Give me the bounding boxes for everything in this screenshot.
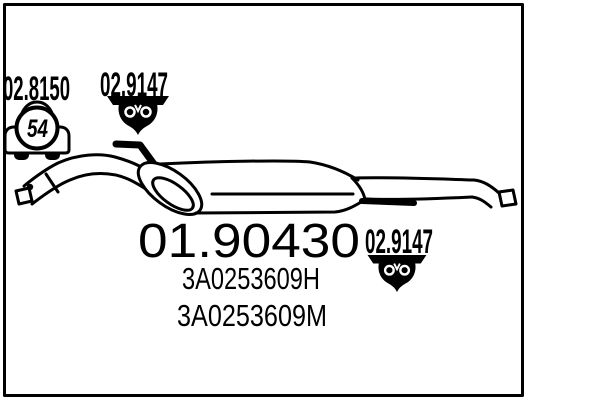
inlet-flange [16, 188, 32, 204]
car-icon: 54 [5, 102, 69, 160]
tail-pipe-tip [499, 190, 516, 206]
oem-reference-2: 3A0253609M [177, 298, 327, 333]
car-badge-number: 54 [27, 115, 48, 143]
muffler-body-bottom [196, 199, 366, 213]
tail-pipe-junction-bar [362, 201, 414, 203]
inlet-pipe-top-edge [24, 155, 143, 186]
diagram-canvas: 54 02.8150 02.9147 01.90430 02.9147 3A02… [0, 0, 600, 400]
muffler-body-top [160, 161, 358, 180]
tail-pipe-top-edge [356, 178, 499, 193]
mount-code-bottom: 02.9147 [365, 223, 433, 261]
catalog-diagram-page: 54 02.8150 02.9147 01.90430 02.9147 3A02… [0, 0, 600, 400]
mount-code-top: 02.9147 [100, 66, 168, 104]
oem-reference-1: 3A0253609H [182, 261, 320, 296]
diagram-frame [5, 5, 523, 396]
silencer-drawing [16, 144, 516, 224]
accessory-code-left: 02.8150 [3, 70, 70, 108]
